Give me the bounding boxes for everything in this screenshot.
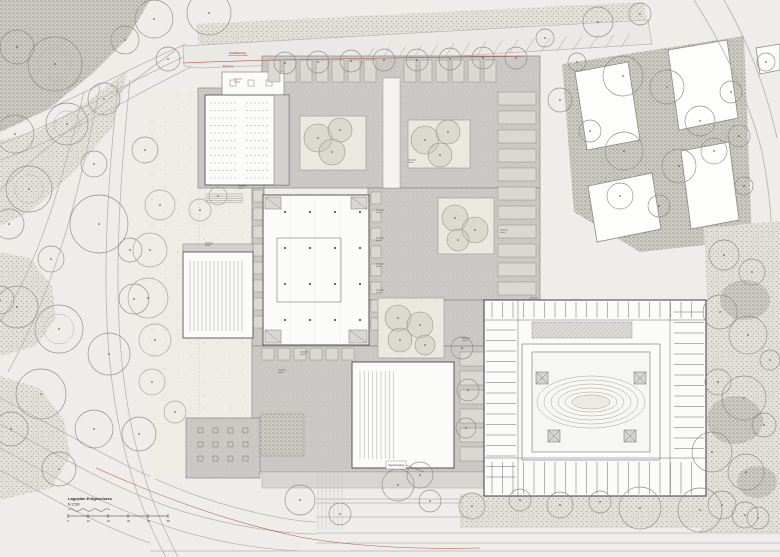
plaza-dot xyxy=(191,369,192,370)
red-annotation-2: Eingang xyxy=(223,64,234,68)
seat-dot xyxy=(218,102,219,103)
seat-dot xyxy=(214,162,215,163)
tree-trunk xyxy=(454,217,456,219)
plaza-dot xyxy=(217,395,218,396)
room-module xyxy=(262,348,274,360)
courtyard-ellipse xyxy=(572,395,610,409)
room-module xyxy=(498,111,536,124)
tree-trunk xyxy=(14,133,16,135)
plaza-dot xyxy=(165,122,166,123)
existing-building xyxy=(756,44,780,74)
seat-dot xyxy=(262,132,263,133)
seat-dot xyxy=(254,170,255,171)
seat-dot xyxy=(258,110,259,111)
column xyxy=(309,211,311,213)
plaza-dot xyxy=(191,200,192,201)
scale-title: Lageplan Erdgeschoss xyxy=(68,496,113,501)
seat-dot xyxy=(258,162,259,163)
tree-trunk xyxy=(199,209,201,211)
tree-trunk xyxy=(723,254,725,256)
plaza-dot xyxy=(152,252,153,253)
room-module xyxy=(316,60,328,82)
shrub-patch xyxy=(720,280,770,320)
seat-dot xyxy=(230,125,231,126)
tree-trunk xyxy=(167,58,169,60)
seat-dot xyxy=(258,132,259,133)
seat-dot xyxy=(222,110,223,111)
plaza-dot xyxy=(191,213,192,214)
tree-trunk xyxy=(639,507,641,509)
room-module xyxy=(498,263,536,276)
plaza-dot xyxy=(243,239,244,240)
tree-trunk xyxy=(10,428,12,430)
room-module xyxy=(498,282,536,295)
plaza-dot xyxy=(217,382,218,383)
seat-dot xyxy=(246,147,247,148)
seat-dot xyxy=(218,162,219,163)
plaza-dot xyxy=(191,408,192,409)
sports-hall xyxy=(352,362,454,468)
tree-trunk xyxy=(743,185,745,187)
seat-dot xyxy=(254,155,255,156)
room-module xyxy=(253,226,263,238)
room-module xyxy=(348,60,360,82)
tree-trunk xyxy=(149,249,151,251)
seat-dot xyxy=(246,155,247,156)
seat-dot xyxy=(258,117,259,118)
plaza-dot xyxy=(191,135,192,136)
plaza-dot xyxy=(191,96,192,97)
room-module xyxy=(498,149,536,162)
terrace xyxy=(532,322,632,338)
seat-dot xyxy=(214,132,215,133)
plaza-dot xyxy=(178,382,179,383)
plaza-dot xyxy=(178,109,179,110)
tree-trunk xyxy=(730,91,732,93)
seat-dot xyxy=(258,125,259,126)
plaza-dot xyxy=(165,278,166,279)
seat-dot xyxy=(222,170,223,171)
seat-dot xyxy=(218,177,219,178)
seat-dot xyxy=(234,140,235,141)
room-module xyxy=(484,60,496,82)
plaza-dot xyxy=(165,135,166,136)
seat-dot xyxy=(230,132,231,133)
plaza-dot xyxy=(191,187,192,188)
seat-dot xyxy=(246,170,247,171)
seat-dot xyxy=(222,102,223,103)
plaza-dot xyxy=(230,356,231,357)
plaza-dot xyxy=(152,291,153,292)
plaza-dot xyxy=(165,369,166,370)
plaza-dot xyxy=(152,148,153,149)
plaza-dot xyxy=(191,109,192,110)
tree-trunk xyxy=(284,62,286,64)
tree-trunk xyxy=(317,61,319,63)
plaza-dot xyxy=(165,291,166,292)
plaza-dot xyxy=(152,408,153,409)
tree-trunk xyxy=(623,150,625,152)
plaza-dot xyxy=(217,226,218,227)
seat-dot xyxy=(226,155,227,156)
plaza-dot xyxy=(152,122,153,123)
tree-trunk xyxy=(339,129,341,131)
plaza-dot xyxy=(204,395,205,396)
seat-dot xyxy=(210,110,211,111)
plaza-dot xyxy=(178,356,179,357)
tree-trunk xyxy=(350,60,352,62)
sports-hall-walls xyxy=(352,362,454,468)
tree-trunk xyxy=(138,433,140,435)
seat-dot xyxy=(222,155,223,156)
plaza-dot xyxy=(178,213,179,214)
seat-dot xyxy=(250,177,251,178)
tree-trunk xyxy=(519,499,521,501)
seat-dot xyxy=(226,140,227,141)
room-module xyxy=(253,298,263,310)
terrace-hatch xyxy=(260,414,304,456)
seat-dot xyxy=(222,125,223,126)
seat-dot xyxy=(258,147,259,148)
room-module xyxy=(371,210,381,222)
plaza-dot xyxy=(243,395,244,396)
tree-trunk xyxy=(144,149,146,151)
tree-trunk xyxy=(399,339,401,341)
tree-trunk xyxy=(763,424,765,426)
plaza-dot xyxy=(243,369,244,370)
seat-dot xyxy=(254,140,255,141)
tree-trunk xyxy=(16,46,18,48)
tree-trunk xyxy=(208,12,210,14)
seat-dot xyxy=(234,162,235,163)
seat-dot xyxy=(214,155,215,156)
plaza-dot xyxy=(165,239,166,240)
tree-trunk xyxy=(28,188,30,190)
column xyxy=(284,319,286,321)
tree-trunk xyxy=(174,411,176,413)
tree-trunk xyxy=(66,123,68,125)
room-module xyxy=(498,225,536,238)
plaza-dot xyxy=(178,330,179,331)
plaza-dot xyxy=(165,226,166,227)
seat-dot xyxy=(222,177,223,178)
tree-trunk xyxy=(54,63,56,65)
plaza-dot xyxy=(152,200,153,201)
seat-dot xyxy=(230,162,231,163)
room-module xyxy=(310,348,322,360)
seat-dot xyxy=(258,177,259,178)
seat-dot xyxy=(258,170,259,171)
room-module xyxy=(278,348,290,360)
room-module xyxy=(284,60,296,82)
seat-dot xyxy=(246,132,247,133)
tree-trunk xyxy=(424,344,426,346)
seat-dot xyxy=(226,102,227,103)
tree-trunk xyxy=(397,484,399,486)
seat-dot xyxy=(218,110,219,111)
seat-dot xyxy=(214,140,215,141)
tree-trunk xyxy=(449,58,451,60)
seat-dot xyxy=(210,162,211,163)
entrance-label: Haupteingang xyxy=(388,463,405,467)
room-module xyxy=(253,262,263,274)
seat-dot xyxy=(266,117,267,118)
shrub-patch xyxy=(737,466,777,498)
seat-dot xyxy=(234,155,235,156)
seat-dot xyxy=(258,155,259,156)
old-building xyxy=(484,300,706,497)
plaza-dot xyxy=(191,356,192,357)
existing-building xyxy=(575,62,640,150)
tree-trunk xyxy=(8,223,10,225)
plaza-dot xyxy=(152,187,153,188)
seat-dot xyxy=(266,125,267,126)
room-module xyxy=(371,192,381,204)
seat-dot xyxy=(230,155,231,156)
seat-dot xyxy=(210,125,211,126)
existing-building xyxy=(681,142,739,229)
plaza-dot xyxy=(152,174,153,175)
seat-dot xyxy=(214,102,215,103)
tree-trunk xyxy=(515,57,517,59)
plaza-dot xyxy=(178,161,179,162)
room-module xyxy=(498,187,536,200)
paving-block xyxy=(186,418,260,478)
tree-trunk xyxy=(339,513,341,515)
plaza-dot xyxy=(178,252,179,253)
seat-dot xyxy=(266,102,267,103)
plaza-dot xyxy=(204,382,205,383)
tree-trunk xyxy=(98,223,100,225)
plaza-dot xyxy=(243,343,244,344)
plaza-dot xyxy=(230,369,231,370)
seat-dot xyxy=(266,155,267,156)
seat-dot xyxy=(210,117,211,118)
plaza-dot xyxy=(152,239,153,240)
plaza-dot xyxy=(178,369,179,370)
seat-dot xyxy=(230,170,231,171)
seat-dot xyxy=(210,170,211,171)
plaza-dot xyxy=(152,304,153,305)
room-module xyxy=(498,168,536,181)
seat-dot xyxy=(222,147,223,148)
seat-dot xyxy=(234,117,235,118)
room-module xyxy=(253,316,263,328)
tree-trunk xyxy=(331,151,333,153)
site-plan-drawing: AnlieferungEingangHaupteingangLageplan E… xyxy=(0,0,780,557)
room-module xyxy=(452,60,464,82)
tree-trunk xyxy=(474,229,476,231)
plaza-dot xyxy=(165,187,166,188)
tree-trunk xyxy=(769,359,771,361)
tree-trunk xyxy=(717,381,719,383)
column xyxy=(284,247,286,249)
tree-trunk xyxy=(447,131,449,133)
seat-dot xyxy=(262,110,263,111)
plaza-dot xyxy=(165,395,166,396)
room-module xyxy=(498,244,536,257)
tree-trunk xyxy=(147,297,149,299)
seat-dot xyxy=(230,110,231,111)
plaza-dot xyxy=(230,213,231,214)
seat-dot xyxy=(262,155,263,156)
tree-trunk xyxy=(108,353,110,355)
seat-dot xyxy=(262,170,263,171)
seat-dot xyxy=(234,132,235,133)
tree-trunk xyxy=(217,195,219,197)
seat-dot xyxy=(230,117,231,118)
tree-trunk xyxy=(559,504,561,506)
plaza-dot xyxy=(165,161,166,162)
column xyxy=(284,283,286,285)
plaza-dot xyxy=(178,148,179,149)
room-module xyxy=(253,280,263,292)
tree-trunk xyxy=(133,298,135,300)
seat-dot xyxy=(250,140,251,141)
seat-dot xyxy=(254,132,255,133)
seat-dot xyxy=(254,102,255,103)
plaza-dot xyxy=(217,343,218,344)
tree-trunk xyxy=(589,130,591,132)
seat-dot xyxy=(266,110,267,111)
plaza-dot xyxy=(178,304,179,305)
plaza-dot xyxy=(165,174,166,175)
seat-dot xyxy=(226,162,227,163)
existing-building xyxy=(668,40,738,130)
tree-trunk xyxy=(719,311,721,313)
tree-trunk xyxy=(465,427,467,429)
room-module xyxy=(371,264,381,276)
plaza-dot xyxy=(152,330,153,331)
seat-dot xyxy=(250,162,251,163)
seat-dot xyxy=(234,177,235,178)
seat-dot xyxy=(266,170,267,171)
seat-dot xyxy=(250,110,251,111)
seat-dot xyxy=(250,132,251,133)
seat-dot xyxy=(266,162,267,163)
plaza-dot xyxy=(178,174,179,175)
seat-dot xyxy=(254,177,255,178)
plaza-dot xyxy=(204,226,205,227)
seat-dot xyxy=(262,117,263,118)
tree-trunk xyxy=(416,59,418,61)
plaza-dot xyxy=(165,330,166,331)
seat-dot xyxy=(230,102,231,103)
tree-trunk xyxy=(713,150,715,152)
tree-trunk xyxy=(622,75,624,77)
seat-dot xyxy=(250,125,251,126)
seat-dot xyxy=(246,110,247,111)
column xyxy=(309,283,311,285)
seat-dot xyxy=(234,102,235,103)
seat-dot xyxy=(226,125,227,126)
tree-trunk xyxy=(597,21,599,23)
seat-dot xyxy=(214,147,215,148)
tree-trunk xyxy=(154,339,156,341)
seat-dot xyxy=(250,117,251,118)
plaza-dot xyxy=(204,343,205,344)
plaza-dot xyxy=(217,239,218,240)
tree-trunk xyxy=(103,98,105,100)
seat-dot xyxy=(222,132,223,133)
seat-dot xyxy=(246,125,247,126)
plaza-dot xyxy=(178,265,179,266)
room-module xyxy=(498,92,536,105)
seat-dot xyxy=(246,102,247,103)
plaza-dot xyxy=(152,135,153,136)
seat-dot xyxy=(214,125,215,126)
room-module xyxy=(300,60,312,82)
tree-trunk xyxy=(699,509,701,511)
tree-trunk xyxy=(747,334,749,336)
room-module xyxy=(342,348,354,360)
seat-dot xyxy=(262,147,263,148)
seat-dot xyxy=(262,125,263,126)
plaza-dot xyxy=(165,265,166,266)
seat-dot xyxy=(266,147,267,148)
tree-trunk xyxy=(738,135,740,137)
seat-dot xyxy=(226,147,227,148)
plaza-dot xyxy=(152,96,153,97)
seat-dot xyxy=(218,140,219,141)
lecture-hall xyxy=(205,95,289,185)
plaza-dot xyxy=(178,226,179,227)
room-module xyxy=(420,60,432,82)
tree-trunk xyxy=(419,324,421,326)
seat-dot xyxy=(234,125,235,126)
seat-dot xyxy=(218,125,219,126)
tree-trunk xyxy=(50,258,52,260)
seat-dot xyxy=(262,162,263,163)
plaza-dot xyxy=(217,213,218,214)
site-plan-page: AnlieferungEingangHaupteingangLageplan E… xyxy=(0,0,780,557)
seat-dot xyxy=(262,177,263,178)
plaza-dot xyxy=(191,239,192,240)
seat-dot xyxy=(226,177,227,178)
tree-trunk xyxy=(467,389,469,391)
column xyxy=(359,283,361,285)
plaza-dot xyxy=(191,395,192,396)
seat-dot xyxy=(226,170,227,171)
column xyxy=(309,247,311,249)
garden-bottom xyxy=(460,494,780,528)
tree-trunk xyxy=(93,428,95,430)
sidewalk xyxy=(262,472,512,488)
plaza-dot xyxy=(230,382,231,383)
seat-dot xyxy=(246,117,247,118)
plaza-dot xyxy=(230,408,231,409)
tree-trunk xyxy=(751,271,753,273)
tree-trunk xyxy=(317,137,319,139)
column xyxy=(334,319,336,321)
plaza-dot xyxy=(191,148,192,149)
service-strip xyxy=(274,95,289,185)
plaza-dot xyxy=(204,356,205,357)
tree-trunk xyxy=(159,204,161,206)
seat-dot xyxy=(234,147,235,148)
column xyxy=(309,319,311,321)
seat-dot xyxy=(250,155,251,156)
seat-dot xyxy=(218,170,219,171)
plaza-dot xyxy=(165,109,166,110)
seat-dot xyxy=(230,177,231,178)
plaza-dot xyxy=(204,408,205,409)
seat-dot xyxy=(246,162,247,163)
tree-trunk xyxy=(482,57,484,59)
tree-trunk xyxy=(299,499,301,501)
seat-dot xyxy=(210,132,211,133)
tree-trunk xyxy=(666,86,668,88)
